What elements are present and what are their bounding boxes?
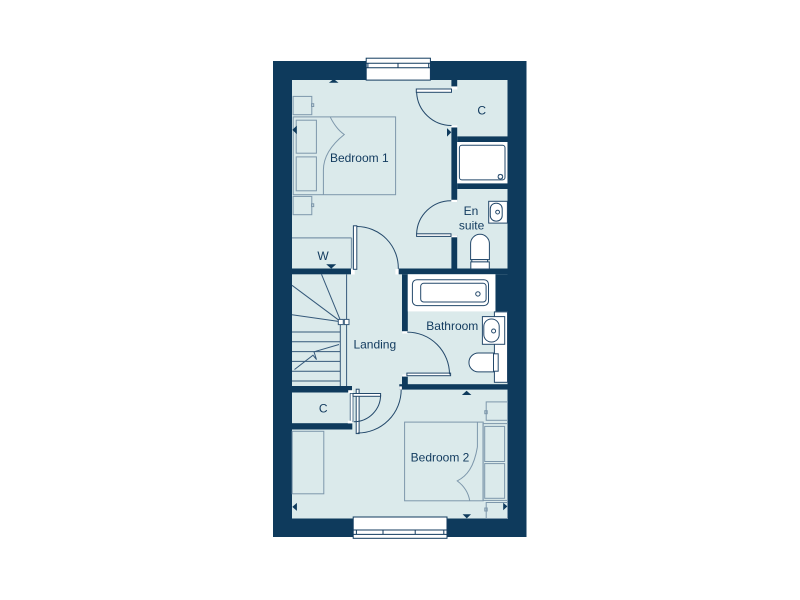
svg-text:C: C	[319, 402, 328, 416]
svg-text:Landing: Landing	[353, 337, 396, 351]
svg-text:Bedroom 1: Bedroom 1	[330, 151, 389, 165]
svg-text:Bathroom: Bathroom	[426, 319, 478, 333]
svg-text:suite: suite	[459, 219, 485, 233]
svg-text:En: En	[464, 204, 479, 218]
svg-text:W: W	[317, 249, 329, 263]
svg-text:Bedroom 2: Bedroom 2	[411, 451, 470, 465]
svg-text:C: C	[477, 104, 486, 118]
